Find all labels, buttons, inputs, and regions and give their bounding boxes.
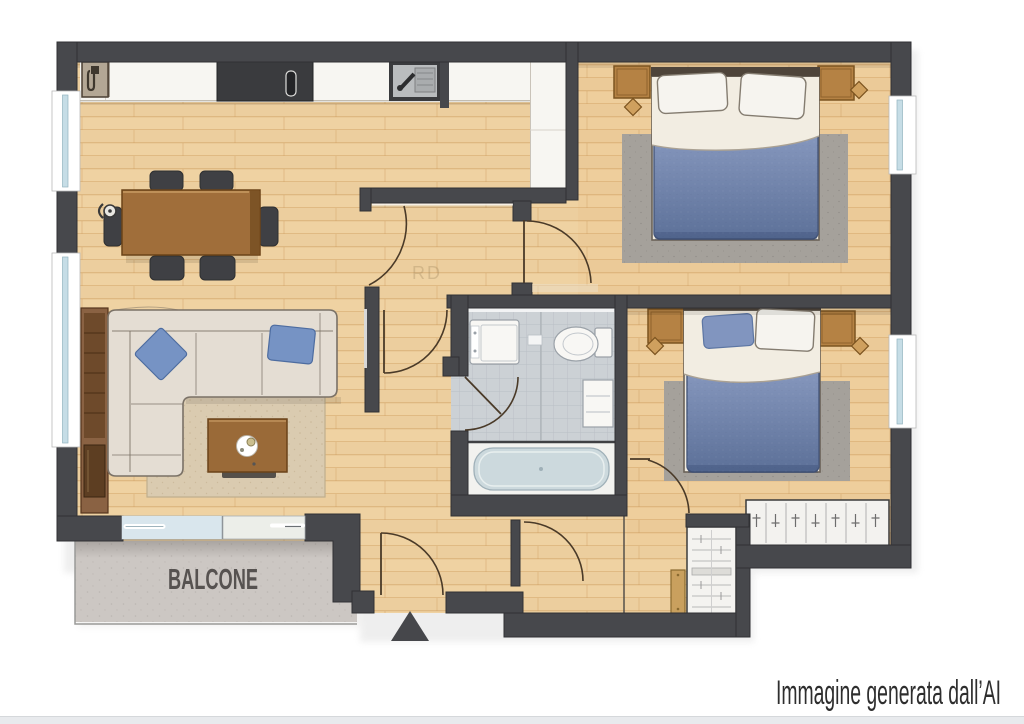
- svg-text:Immagine generata dall’AI: Immagine generata dall’AI: [776, 674, 1001, 712]
- svg-text:BALCONE: BALCONE: [168, 564, 258, 596]
- svg-text:RD: RD: [412, 263, 442, 283]
